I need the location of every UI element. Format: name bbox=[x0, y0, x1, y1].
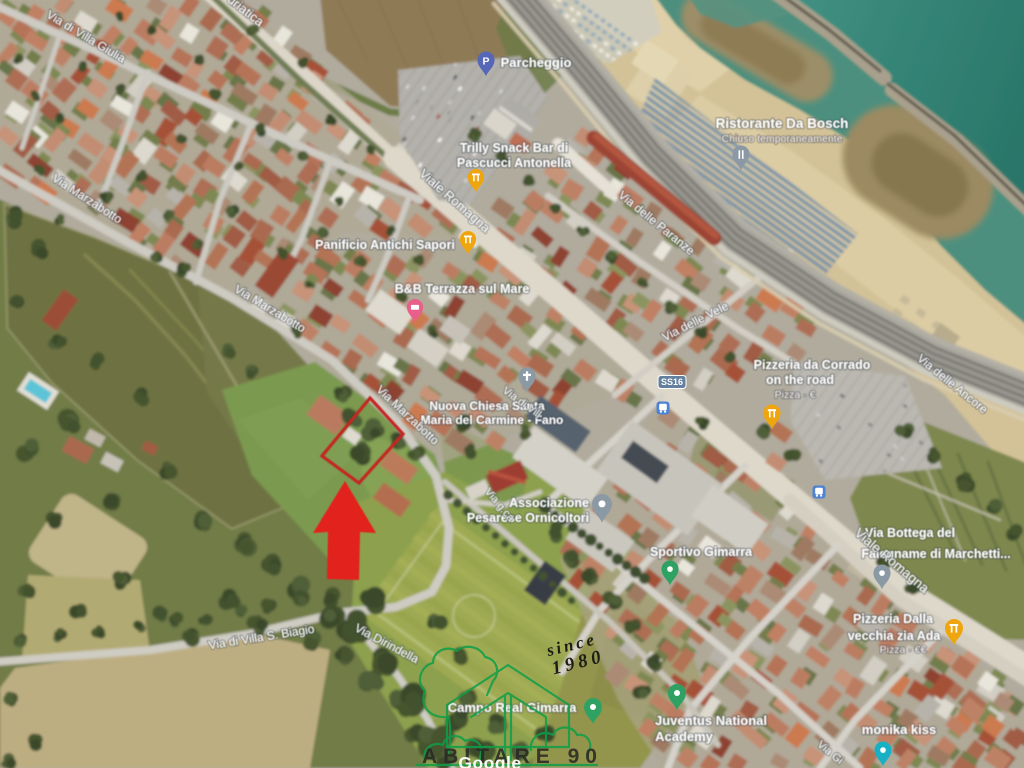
svg-text:Campo Real Gimarra: Campo Real Gimarra bbox=[448, 700, 577, 715]
svg-text:Pesarese Ornicoltori: Pesarese Ornicoltori bbox=[467, 511, 589, 525]
svg-text:P: P bbox=[483, 56, 490, 67]
svg-text:Sportivo Gimarra: Sportivo Gimarra bbox=[650, 545, 753, 559]
svg-text:Juventus National: Juventus National bbox=[655, 713, 767, 728]
svg-text:Pizza · €€: Pizza · €€ bbox=[880, 644, 927, 656]
svg-text:Panificio Antichi Sapori: Panificio Antichi Sapori bbox=[315, 238, 455, 252]
svg-text:Pizza · €: Pizza · € bbox=[775, 389, 816, 401]
svg-text:Pizzeria da Corrado: Pizzeria da Corrado bbox=[754, 358, 871, 372]
svg-text:Pizzeria Dalla: Pizzeria Dalla bbox=[853, 612, 934, 626]
svg-text:Associazione: Associazione bbox=[509, 496, 589, 510]
svg-text:vecchia zia Ada: vecchia zia Ada bbox=[848, 629, 942, 643]
svg-text:Academy: Academy bbox=[655, 729, 714, 744]
svg-text:Pascucci Antonella: Pascucci Antonella bbox=[457, 156, 572, 170]
svg-text:Chiuso temporaneamente: Chiuso temporaneamente bbox=[722, 133, 843, 145]
svg-text:Google: Google bbox=[458, 753, 521, 768]
svg-text:Maria del Carmine - Fano: Maria del Carmine - Fano bbox=[421, 413, 564, 427]
svg-text:on the road: on the road bbox=[766, 373, 834, 387]
svg-text:Ristorante Da Bosch: Ristorante Da Bosch bbox=[716, 116, 849, 131]
svg-text:SS16: SS16 bbox=[661, 377, 683, 387]
svg-text:B&B Terrazza sul Mare: B&B Terrazza sul Mare bbox=[395, 282, 530, 296]
svg-text:Trilly Snack Bar di: Trilly Snack Bar di bbox=[460, 141, 568, 155]
svg-text:Parcheggio: Parcheggio bbox=[501, 55, 572, 70]
svg-text:monika kiss: monika kiss bbox=[862, 722, 936, 737]
svg-text:Via Bottega del: Via Bottega del bbox=[865, 526, 955, 540]
